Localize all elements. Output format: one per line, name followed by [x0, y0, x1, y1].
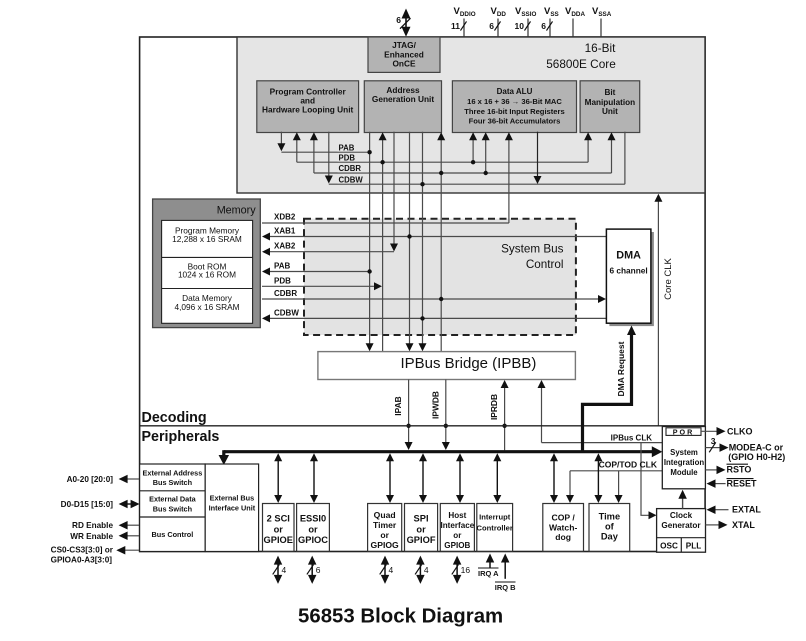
svg-text:PAB: PAB	[339, 143, 355, 152]
svg-text:CDBW: CDBW	[274, 309, 299, 318]
svg-text:RESET: RESET	[727, 478, 758, 488]
svg-text:DMA: DMA	[616, 249, 641, 261]
svg-text:PDB: PDB	[274, 276, 291, 285]
svg-text:GPIOC: GPIOC	[298, 535, 328, 545]
svg-text:GPIOE: GPIOE	[264, 535, 293, 545]
svg-text:XDB2: XDB2	[274, 213, 296, 222]
svg-text:6: 6	[489, 21, 494, 31]
svg-text:IPBus Bridge (IPBB): IPBus Bridge (IPBB)	[400, 355, 536, 372]
svg-text:4,096 x 16 SRAM: 4,096 x 16 SRAM	[174, 302, 239, 312]
svg-text:(GPIO H0-H2): (GPIO H0-H2)	[728, 452, 785, 462]
svg-text:2 SCI: 2 SCI	[267, 514, 290, 524]
svg-text:Clock: Clock	[670, 511, 693, 520]
svg-text:56800E Core: 56800E Core	[546, 57, 616, 71]
svg-text:Decoding: Decoding	[142, 410, 207, 426]
svg-text:IRQ B: IRQ B	[495, 583, 516, 592]
svg-text:COP /: COP /	[552, 512, 576, 522]
svg-text:4: 4	[389, 565, 394, 575]
svg-text:Interface: Interface	[440, 521, 474, 530]
svg-text:CDBR: CDBR	[339, 164, 362, 173]
svg-text:Unit: Unit	[602, 107, 618, 116]
svg-text:PDB: PDB	[339, 153, 356, 162]
svg-text:IRQ A: IRQ A	[478, 569, 499, 578]
svg-text:Host: Host	[448, 511, 466, 520]
svg-text:12,288 x 16 SRAM: 12,288 x 16 SRAM	[172, 234, 242, 244]
svg-text:Module: Module	[670, 468, 698, 477]
svg-text:Bus Switch: Bus Switch	[153, 504, 192, 513]
svg-text:CLKO: CLKO	[727, 427, 753, 437]
svg-text:or: or	[308, 524, 318, 534]
svg-text:Generation Unit: Generation Unit	[372, 94, 434, 104]
svg-text:XAB1: XAB1	[274, 227, 296, 236]
svg-text:Bus Control: Bus Control	[152, 530, 194, 539]
svg-text:Peripherals: Peripherals	[142, 429, 220, 445]
svg-text:OSC: OSC	[660, 542, 678, 551]
svg-text:ESSI0: ESSI0	[300, 514, 326, 524]
svg-text:RD Enable: RD Enable	[72, 521, 113, 530]
svg-text:Interrupt: Interrupt	[479, 513, 511, 522]
svg-text:WR Enable: WR Enable	[70, 532, 113, 541]
svg-text:A0-20 [20:0]: A0-20 [20:0]	[67, 475, 114, 484]
svg-text:Bus Switch: Bus Switch	[153, 478, 192, 487]
svg-text:External Address: External Address	[143, 469, 203, 478]
svg-text:D0-D15 [15:0]: D0-D15 [15:0]	[61, 500, 114, 509]
svg-text:Day: Day	[601, 532, 619, 542]
svg-text:IPRDB: IPRDB	[489, 394, 499, 420]
svg-text:Integration: Integration	[664, 458, 705, 467]
svg-text:IPWDB: IPWDB	[431, 391, 441, 419]
svg-text:or: or	[274, 524, 284, 534]
svg-text:Timer: Timer	[373, 520, 397, 530]
svg-text:EXTAL: EXTAL	[732, 505, 761, 515]
svg-text:Time: Time	[599, 511, 621, 521]
svg-text:DMA Request: DMA Request	[616, 341, 626, 396]
svg-text:POR: POR	[673, 427, 695, 436]
svg-text:System: System	[670, 448, 698, 457]
svg-text:56853 Block Diagram: 56853 Block Diagram	[298, 606, 503, 628]
svg-text:GPIOG: GPIOG	[371, 540, 399, 550]
svg-text:GPIOF: GPIOF	[407, 535, 436, 545]
svg-text:RSTO: RSTO	[727, 464, 752, 474]
svg-text:Bit: Bit	[604, 88, 615, 97]
svg-text:System Bus: System Bus	[501, 242, 564, 255]
svg-text:Hardware Looping Unit: Hardware Looping Unit	[262, 105, 354, 115]
svg-text:IPAB: IPAB	[393, 396, 403, 415]
svg-text:External Bus: External Bus	[210, 494, 255, 503]
svg-text:PLL: PLL	[686, 542, 701, 551]
svg-text:Manipulation: Manipulation	[585, 98, 635, 107]
svg-text:Generator: Generator	[661, 521, 701, 530]
svg-text:Quad: Quad	[374, 510, 396, 520]
svg-text:4: 4	[282, 565, 287, 575]
svg-text:Interface Unit: Interface Unit	[209, 504, 256, 513]
svg-text:Core CLK: Core CLK	[663, 257, 674, 299]
svg-text:10: 10	[515, 21, 525, 31]
svg-text:4: 4	[424, 565, 429, 575]
svg-text:IPBus CLK: IPBus CLK	[611, 434, 653, 443]
svg-text:6 channel: 6 channel	[609, 265, 647, 275]
svg-text:16 x 16 + 36 → 36-Bit MAC: 16 x 16 + 36 → 36-Bit MAC	[467, 97, 562, 106]
svg-text:Four 36-bit Accumulators: Four 36-bit Accumulators	[469, 117, 561, 126]
svg-text:CDBW: CDBW	[339, 175, 364, 184]
svg-text:COP/TOD CLK: COP/TOD CLK	[599, 460, 658, 470]
svg-text:PAB: PAB	[274, 262, 291, 271]
svg-text:GPIOA0-A3[3:0]: GPIOA0-A3[3:0]	[51, 556, 113, 565]
svg-text:JTAG/: JTAG/	[392, 40, 417, 50]
svg-text:1024 x 16 ROM: 1024 x 16 ROM	[178, 270, 236, 280]
svg-text:of: of	[605, 522, 615, 532]
svg-text:11: 11	[451, 21, 460, 31]
svg-text:6: 6	[541, 21, 546, 31]
svg-text:or: or	[380, 530, 389, 540]
svg-text:Controller: Controller	[477, 524, 513, 533]
svg-text:Watch-: Watch-	[549, 522, 577, 532]
svg-text:XAB2: XAB2	[274, 242, 296, 251]
svg-text:CS0-CS3[3:0] or: CS0-CS3[3:0] or	[51, 546, 114, 555]
svg-text:XTAL: XTAL	[732, 520, 755, 530]
svg-text:16-Bit: 16-Bit	[585, 41, 617, 55]
svg-text:Three 16-bit Input Registers: Three 16-bit Input Registers	[464, 107, 564, 116]
svg-text:SPI: SPI	[414, 514, 429, 524]
svg-text:16: 16	[461, 565, 471, 575]
svg-text:6: 6	[316, 565, 321, 575]
svg-text:or: or	[453, 531, 462, 540]
svg-text:External Data: External Data	[149, 495, 197, 504]
svg-text:3: 3	[711, 436, 716, 446]
svg-text:Data ALU: Data ALU	[497, 87, 533, 96]
svg-text:GPIOB: GPIOB	[444, 541, 470, 550]
svg-text:6: 6	[396, 15, 401, 25]
svg-text:OnCE: OnCE	[392, 59, 416, 69]
svg-text:CDBR: CDBR	[274, 289, 297, 298]
svg-text:Memory: Memory	[217, 204, 257, 216]
svg-text:or: or	[416, 524, 426, 534]
svg-text:dog: dog	[555, 532, 571, 542]
svg-text:Control: Control	[526, 258, 564, 271]
svg-text:MODEA-C or: MODEA-C or	[729, 443, 784, 453]
